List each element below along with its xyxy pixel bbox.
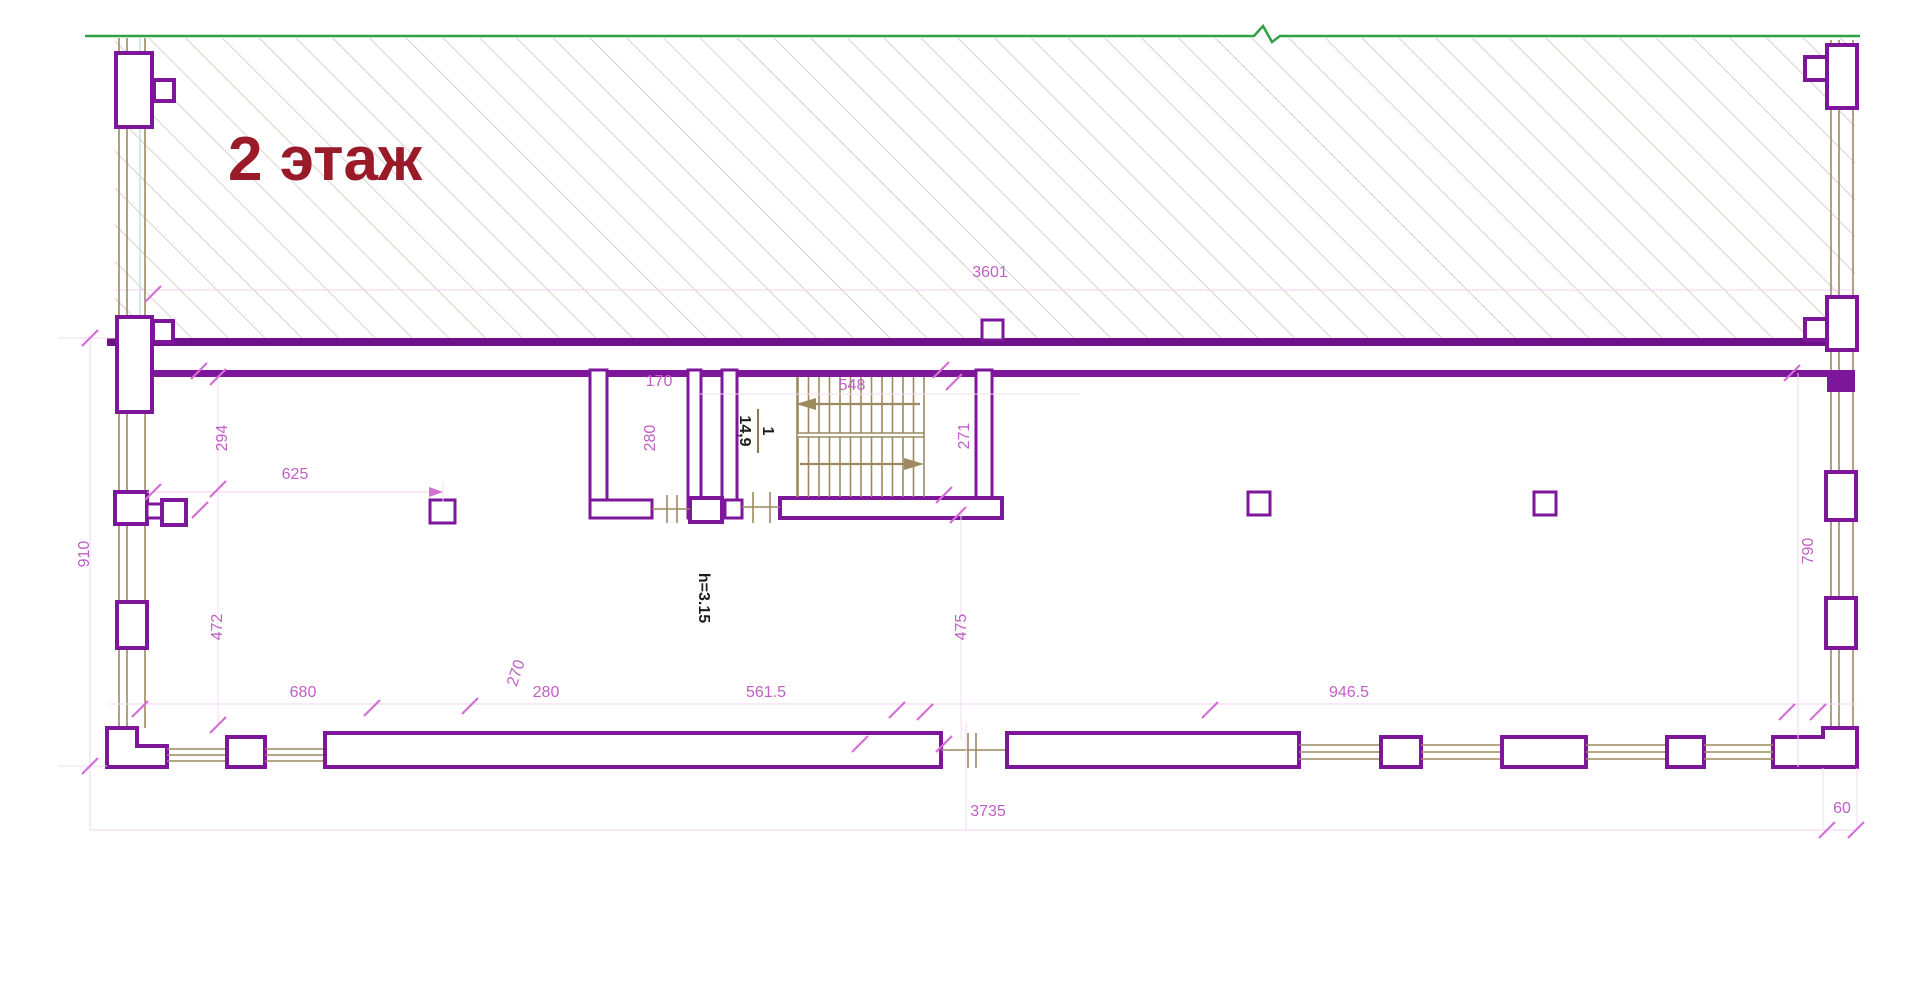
dim-bottom-a: 680 <box>290 684 317 701</box>
stairwell-south-wall <box>780 498 1002 518</box>
dim-bottom-d: 561.5 <box>746 684 786 701</box>
stair-flight <box>796 377 924 497</box>
dim-below-stair: 475 <box>953 614 970 641</box>
door-pier <box>725 500 742 518</box>
door-jamb-marks <box>742 492 780 523</box>
dim-bottom-e: 946.5 <box>1329 684 1369 701</box>
wall-pier <box>227 737 265 767</box>
room-south-wall <box>590 500 652 518</box>
window-glazing <box>1299 745 1381 759</box>
dim-left-lower: 472 <box>209 614 226 641</box>
right-column-pilaster <box>1805 57 1827 80</box>
dim-hall: 625 <box>282 466 309 483</box>
stair-treads-lower <box>798 437 914 497</box>
stairwell-wall <box>976 370 992 502</box>
dim-strip: 3601 <box>972 264 1008 281</box>
floor-plan-drawing: 2 этаж <box>0 0 1920 1003</box>
height-note: h=3.15 <box>695 573 712 623</box>
room-area: 14,9 <box>736 415 753 446</box>
dim-stair-height: 271 <box>956 423 973 450</box>
door-jamb-marks <box>652 495 690 523</box>
window-glazing <box>1586 745 1667 759</box>
left-column-pilaster <box>162 500 186 525</box>
stair-room-label: 1 14,9 <box>736 409 776 453</box>
stairwell-wall <box>688 370 701 518</box>
left-column <box>117 602 147 648</box>
wall-pier <box>1381 737 1421 767</box>
dim-bottom-total: 3735 <box>970 803 1006 820</box>
left-column <box>117 317 152 412</box>
stairwell-wall <box>590 370 607 518</box>
interior-column <box>1534 492 1556 515</box>
stair-up-arrow-head <box>796 398 816 410</box>
stairwell-wall <box>722 370 737 502</box>
left-column <box>115 492 147 524</box>
interior-north-wall <box>150 370 1855 392</box>
dim-room-width: 170 <box>646 373 673 390</box>
right-column <box>1827 45 1857 108</box>
window-glazing <box>1704 745 1773 759</box>
north-wall-right-corner <box>1827 370 1855 392</box>
strip-column <box>982 320 1003 340</box>
south-wall-segment <box>1007 733 1299 767</box>
left-column-pilaster <box>153 321 173 342</box>
door-pier <box>690 498 722 522</box>
dim-bottom-c: 280 <box>533 684 560 701</box>
floor-title: 2 этаж <box>228 125 423 194</box>
wall-pier <box>1667 737 1704 767</box>
right-column-pilaster <box>1805 319 1827 340</box>
dim-bottom-corner: 60 <box>1833 800 1851 817</box>
south-wall-segment <box>325 733 941 767</box>
window-glazing <box>265 749 325 761</box>
wall-pier <box>1502 737 1586 767</box>
dim-stair-width: 548 <box>839 377 866 394</box>
dim-arrow-head <box>429 487 443 497</box>
interior-column <box>430 500 455 523</box>
window-glazing <box>1421 745 1502 759</box>
dim-left-total: 910 <box>76 541 93 568</box>
left-bottom-corner-column <box>107 728 167 767</box>
dim-right-side: 790 <box>1800 538 1817 565</box>
dim-room-depth: 280 <box>642 425 659 452</box>
south-exterior-wall <box>167 733 1773 768</box>
interior-column <box>1248 492 1270 515</box>
right-window-frame <box>1826 472 1856 520</box>
left-column-pilaster <box>154 80 174 101</box>
right-column <box>1827 297 1857 350</box>
floor-plan-canvas: 2 этаж <box>0 0 1920 1003</box>
right-window-frame <box>1826 598 1856 648</box>
left-column <box>116 53 152 127</box>
dim-left-upper: 294 <box>214 425 231 452</box>
window-glazing <box>167 749 227 761</box>
room-number: 1 <box>759 427 776 436</box>
right-bottom-corner-column <box>1773 728 1857 767</box>
dim-bottom-b: 270 <box>504 658 528 689</box>
height-note-text: h=3.15 <box>695 573 712 623</box>
